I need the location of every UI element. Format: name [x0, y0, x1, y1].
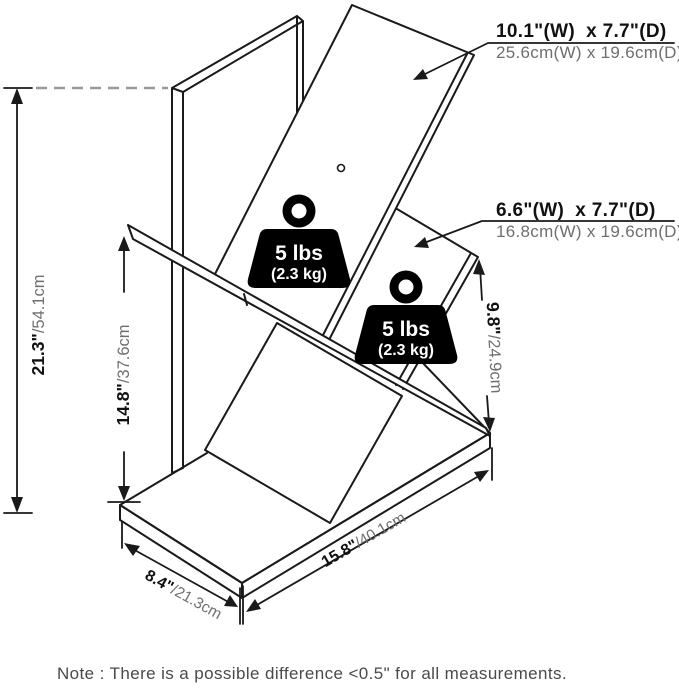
depth-metric: /21.3cm	[168, 581, 224, 623]
arrow-up-icon	[118, 236, 130, 251]
right-height-metric: /24.9cm	[484, 334, 505, 394]
right-height-inches: 9.8"	[483, 302, 505, 336]
arrow-downleft-icon	[246, 599, 261, 612]
weight-icon-hole	[292, 204, 307, 219]
total-height-line	[4, 88, 32, 513]
total-height-metric: /54.1cm	[30, 274, 48, 333]
lower-shelf-size-metric: 16.8cm(W) x 19.6cm(D)	[496, 222, 679, 241]
top-shelf-size-metric: 25.6cm(W) x 19.6cm(D)	[496, 43, 679, 62]
product-dimension-diagram: 5 lbs (2.3 kg) 5 lbs (2.3 kg) 21.3"/54.1…	[0, 0, 679, 689]
weight-kg-label: (2.3 kg)	[271, 266, 327, 283]
weight-icon-hole	[399, 280, 414, 295]
dimension-shelf-height: 14.8"/37.6cm	[108, 236, 140, 502]
arrow-upleft-icon	[124, 543, 140, 556]
weight-lbs-label: 5 lbs	[382, 318, 430, 341]
arrow-down-icon	[11, 497, 23, 513]
weight-lbs-label: 5 lbs	[275, 242, 323, 265]
measurement-note: Note : There is a possible difference <0…	[57, 664, 567, 683]
panel-hole	[338, 165, 345, 172]
arrow-up-icon	[11, 88, 23, 104]
diagram-canvas: 5 lbs (2.3 kg) 5 lbs (2.3 kg) 21.3"/54.1…	[0, 0, 679, 689]
lower-shelf-size-inches: 6.6"(W) x 7.7"(D)	[496, 200, 656, 221]
weight-badge-lower: 5 lbs (2.3 kg)	[355, 271, 458, 365]
top-shelf-size-inches: 10.1"(W) x 7.7"(D)	[496, 21, 666, 42]
dimension-total-height: 21.3"/54.1cm	[4, 88, 168, 513]
total-height-inches: 21.3"	[28, 333, 48, 375]
shelf-height-inches: 14.8"	[113, 383, 133, 425]
arrow-down-icon	[118, 486, 130, 501]
shelf-height-metric: /37.6cm	[115, 324, 133, 383]
total-height-label: 21.3"/54.1cm	[28, 274, 48, 375]
right-height-label: 9.8"/24.9cm	[483, 302, 508, 394]
arrow-downleft-icon	[414, 237, 429, 248]
callout-lower-shelf: 6.6"(W) x 7.7"(D) 16.8cm(W) x 19.6cm(D)	[414, 200, 679, 248]
shelf-height-label: 14.8"/37.6cm	[113, 324, 133, 425]
arrow-upright-icon	[474, 470, 489, 482]
weight-kg-label: (2.3 kg)	[378, 342, 434, 359]
dimension-right-height: 9.8"/24.9cm	[473, 259, 507, 432]
